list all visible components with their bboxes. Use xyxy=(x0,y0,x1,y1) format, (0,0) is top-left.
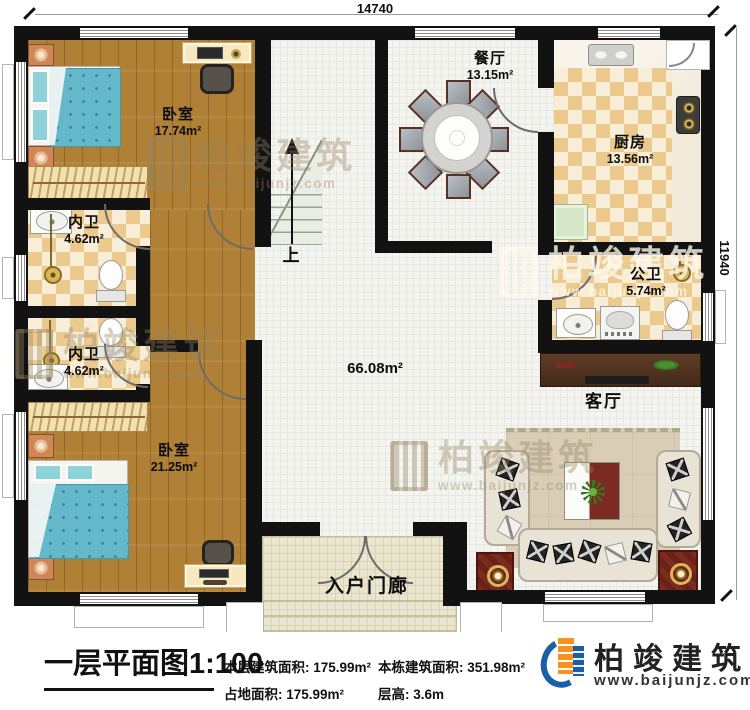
bed-double xyxy=(28,66,120,146)
room-label-porch: 入户门廊 xyxy=(308,576,426,598)
wall-dining-south xyxy=(375,241,492,253)
plant-decor xyxy=(653,360,679,370)
toilet-bowl xyxy=(665,300,689,330)
stats-column-2: 本栋建筑面积: 351.98m² 层高: 3.6m xyxy=(378,656,525,710)
brand-logo-icon xyxy=(541,634,589,692)
refrigerator xyxy=(552,204,588,240)
dimension-top: 14740 xyxy=(340,1,410,15)
corner-door-box xyxy=(666,40,710,70)
brand-url: www.baijunjz.com xyxy=(594,672,750,689)
wardrobe xyxy=(28,166,148,200)
window xyxy=(545,592,645,602)
toilet-bowl xyxy=(99,318,123,346)
laptop xyxy=(197,47,223,59)
end-table-left xyxy=(476,552,514,594)
wall-porch-pier xyxy=(443,522,467,606)
window xyxy=(80,594,198,604)
tv xyxy=(585,376,649,384)
stat-label: 占地面积: xyxy=(224,687,283,702)
sofa-cushion xyxy=(604,542,627,565)
wall-kitchen-west-b xyxy=(538,132,554,242)
bed-double xyxy=(28,460,128,558)
stat-label: 层高: xyxy=(378,687,410,702)
room-name: 公卫 xyxy=(600,266,692,284)
porch-step-line xyxy=(262,615,457,617)
window-sill xyxy=(715,290,726,344)
desk-chair xyxy=(200,64,234,94)
window-sill xyxy=(2,414,14,498)
table-lamp xyxy=(670,563,692,585)
toilet-tank xyxy=(96,290,126,302)
window xyxy=(80,28,188,38)
window xyxy=(16,412,26,500)
washing-machine xyxy=(600,306,640,340)
desk-chair xyxy=(202,540,234,566)
bathroom-sink xyxy=(556,308,596,338)
stair-direction-line xyxy=(291,152,293,244)
window xyxy=(598,28,660,38)
toilet xyxy=(662,298,690,342)
room-area: 4.62m² xyxy=(38,232,130,247)
wall-dining-west xyxy=(375,40,388,253)
wall-bedroom2-east xyxy=(246,352,262,606)
wall-bath-bottom xyxy=(14,390,150,402)
wardrobe-rod xyxy=(33,182,145,184)
stat-label: 本层建筑面积: xyxy=(224,660,310,675)
wall-publicbath-west xyxy=(538,300,552,340)
dimension-tick xyxy=(724,24,737,37)
stat-label: 本栋建筑面积: xyxy=(378,660,464,675)
burner xyxy=(683,118,695,130)
wall-stair-bedroom xyxy=(255,40,271,247)
sofa-cushion xyxy=(498,488,521,511)
room-label-living: 客厅 xyxy=(572,392,636,412)
room-label-public-bath: 公卫 5.74m² xyxy=(600,266,692,298)
stove xyxy=(676,96,700,134)
window-sill xyxy=(543,604,653,622)
floorplan-page: { "dimensions": { "width_mm": "14740", "… xyxy=(0,0,750,707)
dimension-tick xyxy=(707,5,720,18)
footer: 一层平面图1:100 本层建筑面积: 175.99m² 占地面积: 175.99… xyxy=(0,632,750,707)
window xyxy=(16,62,26,162)
stereo xyxy=(199,569,229,578)
room-label-ensuite-bottom: 内卫 4.62m² xyxy=(38,346,130,378)
room-name: 卧室 xyxy=(124,442,224,460)
dimension-right: 11940 xyxy=(716,228,732,288)
sofa-bottom xyxy=(518,528,658,582)
desk xyxy=(184,564,252,588)
room-name: 卧室 xyxy=(128,106,228,124)
wall-kitchen-bath xyxy=(538,242,702,255)
stat-value: 351.98m² xyxy=(467,660,525,675)
speaker xyxy=(203,580,227,585)
room-label-dining: 餐厅 13.15m² xyxy=(440,50,540,82)
dimension-tick xyxy=(720,589,733,602)
pillow xyxy=(34,464,62,481)
room-area: 5.74m² xyxy=(600,284,692,299)
sofa-right xyxy=(656,450,701,548)
dining-chair xyxy=(446,174,471,199)
stat-total-area: 本栋建筑面积: 351.98m² xyxy=(378,656,525,676)
sofa-cushion xyxy=(668,488,691,511)
stat-value: 175.99m² xyxy=(313,660,371,675)
stat-value: 175.99m² xyxy=(286,687,344,702)
pillow xyxy=(66,464,94,481)
sink-basin xyxy=(563,314,593,335)
wall-bedroom2-north-a xyxy=(150,340,198,352)
sofa-cushion xyxy=(578,540,602,564)
window xyxy=(703,408,713,520)
nightstand xyxy=(28,434,54,458)
window xyxy=(703,293,713,341)
sofa-cushion xyxy=(667,517,693,543)
stair-up-label: 上 xyxy=(278,246,304,266)
room-area: 21.25m² xyxy=(124,460,224,475)
pillow xyxy=(31,108,49,142)
dining-table xyxy=(421,102,493,174)
wardrobe-rod xyxy=(33,416,145,418)
nightstand xyxy=(28,44,54,66)
table-lamp xyxy=(487,565,509,587)
dining-table-center xyxy=(449,130,465,146)
desk xyxy=(182,42,252,64)
room-label-kitchen: 厨房 13.56m² xyxy=(580,134,680,166)
room-label-bedroom-top: 卧室 17.74m² xyxy=(128,106,228,138)
end-table-right xyxy=(658,550,698,592)
tv-cabinet xyxy=(540,353,701,387)
room-label-bedroom-bottom: 卧室 21.25m² xyxy=(124,442,224,474)
logo-building-blue xyxy=(573,646,584,676)
stat-floor-area: 本层建筑面积: 175.99m² xyxy=(224,656,371,676)
stat-story-height: 层高: 3.6m xyxy=(378,683,525,703)
room-label-ensuite-top: 内卫 4.62m² xyxy=(38,214,130,246)
wall-kitchen-west-a xyxy=(538,40,554,88)
room-name: 内卫 xyxy=(38,214,130,232)
coffee-table xyxy=(564,462,620,520)
sofa-cushion xyxy=(666,458,690,482)
window xyxy=(415,28,515,38)
washer-lid xyxy=(606,311,634,329)
wardrobe xyxy=(28,402,148,432)
pillow xyxy=(31,70,49,104)
nightstand xyxy=(28,556,54,580)
room-area: 13.15m² xyxy=(440,68,540,83)
plan-title-text: 一层平面图 xyxy=(44,648,189,680)
toilet xyxy=(96,258,124,302)
window-sill xyxy=(74,606,204,628)
wall-porch-left xyxy=(246,522,320,536)
corner-door-arc xyxy=(669,43,695,67)
window xyxy=(16,255,26,301)
room-name: 厨房 xyxy=(580,134,680,152)
sofa-cushion xyxy=(526,540,549,563)
sofa-cushion xyxy=(630,540,652,562)
room-name: 内卫 xyxy=(38,346,130,364)
stat-land-area: 占地面积: 175.99m² xyxy=(224,683,371,703)
shower-head xyxy=(44,266,62,284)
room-name: 餐厅 xyxy=(440,50,540,68)
porch-step-line xyxy=(262,600,457,602)
logo-building-orange xyxy=(558,638,574,674)
wall-bath-east-2 xyxy=(136,318,150,346)
sofa-cushion xyxy=(495,457,519,481)
window-sill xyxy=(2,64,14,160)
dimension-line-right xyxy=(736,28,737,600)
wall-bath-divider xyxy=(14,306,150,318)
burner xyxy=(683,102,695,114)
room-area: 4.62m² xyxy=(38,364,130,379)
room-area: 17.74m² xyxy=(128,124,228,139)
staircase-steps xyxy=(265,183,322,245)
wall-bedroom2-north-b xyxy=(246,340,262,352)
kitchen-sink xyxy=(588,44,634,66)
desk-lamp xyxy=(231,49,241,59)
stair-direction-arrow xyxy=(285,138,299,154)
wall-bath-east-1 xyxy=(136,246,150,306)
table-plant-center xyxy=(589,488,597,496)
remote xyxy=(555,362,575,368)
sofa-cushion xyxy=(552,542,574,564)
title-underline xyxy=(44,688,214,691)
washer-controls xyxy=(605,332,635,336)
hall-area-label: 66.08m² xyxy=(330,360,420,378)
dimension-tick xyxy=(23,7,36,20)
window-sill xyxy=(2,257,14,299)
wall-publicbath-south xyxy=(538,340,702,353)
room-area: 13.56m² xyxy=(580,152,680,167)
stats-column-1: 本层建筑面积: 175.99m² 占地面积: 175.99m² xyxy=(224,656,371,710)
stat-value: 3.6m xyxy=(413,687,444,702)
toilet-bowl xyxy=(99,260,123,290)
